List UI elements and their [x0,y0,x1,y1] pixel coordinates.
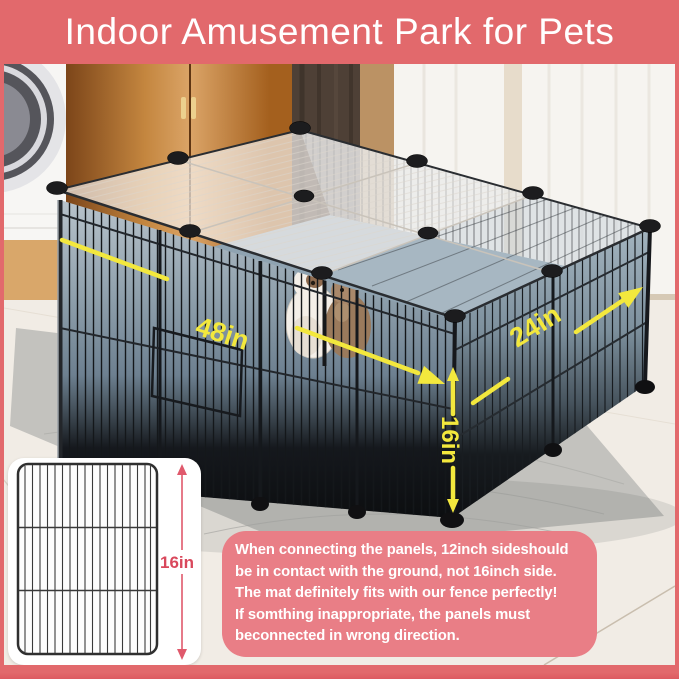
product-image: Indoor Amusement Park for Pets [0,0,679,679]
washing-machine [4,64,66,240]
panel-size-card: 16in [8,458,201,665]
note-line: If somthing inappropriate, the panels mu… [235,605,584,627]
wire-panel-outline [18,464,157,654]
frame-bottom-strip [0,665,679,679]
wardrobe-handle [191,97,196,119]
note-line: When connecting the panels, 12inch sides… [235,540,584,562]
note-line: be in contact with the ground, not 16inc… [235,562,584,584]
dimension-label-height: 16in [436,416,463,464]
note-line: The mat definitely fits with our fence p… [235,583,584,605]
page-title: Indoor Amusement Park for Pets [65,11,615,53]
instruction-note: When connecting the panels, 12inch sides… [222,531,597,657]
wardrobe-handle [181,97,186,119]
panel-diagram: 16in [8,458,201,665]
note-line: beconnected in wrong direction. [235,626,584,648]
title-banner: Indoor Amusement Park for Pets [0,0,679,64]
panel-height-label: 16in [160,553,194,572]
